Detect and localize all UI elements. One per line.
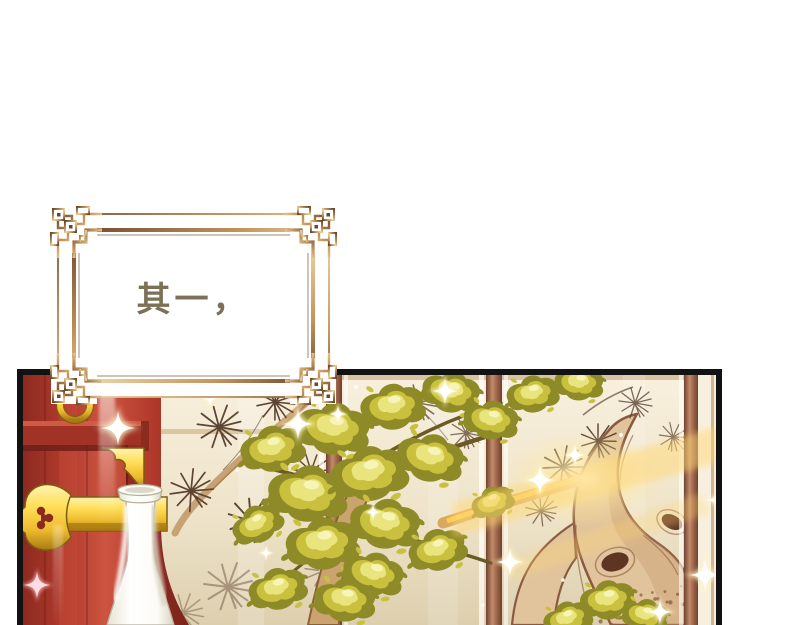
fret-corner-bottom-right (285, 353, 336, 404)
comic-page: 其一， (0, 0, 800, 625)
caption-text: 其一， (50, 280, 337, 321)
caption-box: 其一， (50, 206, 337, 405)
comic-panel (17, 369, 722, 625)
interior-illustration (23, 375, 716, 625)
fret-corner-top-right (285, 207, 336, 258)
fret-corner-bottom-left (51, 353, 102, 404)
fret-corner-top-left (51, 207, 102, 258)
